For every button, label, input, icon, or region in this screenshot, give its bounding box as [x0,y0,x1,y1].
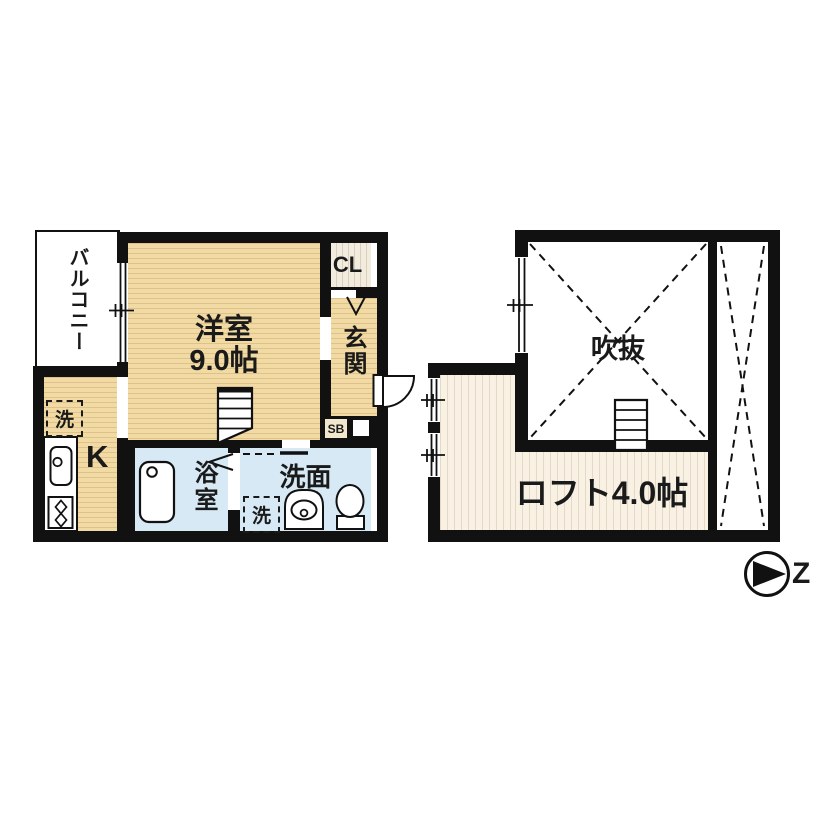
wall-opening-washroom-door [282,440,310,448]
wall-segment [377,232,388,542]
kitchen-label: K [86,439,108,475]
compass-north-label: Z [792,557,810,591]
wall-opening-entrance [320,317,331,360]
wall-opening-loft-window-2 [428,433,440,477]
washer-label: 洗 [252,501,271,528]
western-room-size-label: 9.0帖 [128,340,320,376]
floorplan-canvas: バルコニー [0,0,840,840]
loft-label: ロフト4.0帖 [462,473,742,509]
wall-opening-kitchen [117,377,128,438]
wall-segment [515,440,708,452]
void-label: 吹抜 [528,331,708,361]
wall-opening-bath-door [228,453,240,510]
wall-segment [33,366,44,531]
shoe-box: SB [324,418,348,439]
wall-segment [428,363,528,375]
washer-space: 洗 [46,400,83,437]
washroom-label: 洗面 [240,460,371,490]
wall-segment [515,230,780,242]
entrance-label: 玄関 [335,325,370,377]
balcony-label: バルコニー [37,232,118,367]
wall-segment [33,531,388,542]
compass-icon [746,553,789,596]
bathroom-label: 浴室 [186,460,221,514]
wall-opening-loft-window-1 [428,378,440,422]
entrance-step [353,420,369,436]
wall-opening-void-window [515,257,528,353]
washer-space: 洗 [243,496,280,533]
wall-segment [356,287,377,298]
washer-label: 洗 [55,405,74,432]
wall-segment [117,232,388,243]
closet-label: CL [324,246,371,284]
wall-segment [768,230,780,542]
wall-opening-balcony-window [117,263,128,362]
wall-segment [44,366,118,377]
wall-segment [128,448,135,531]
wall-segment [428,530,780,542]
balcony-room: バルコニー [35,230,120,369]
shoe-box-label: SB [328,422,345,436]
